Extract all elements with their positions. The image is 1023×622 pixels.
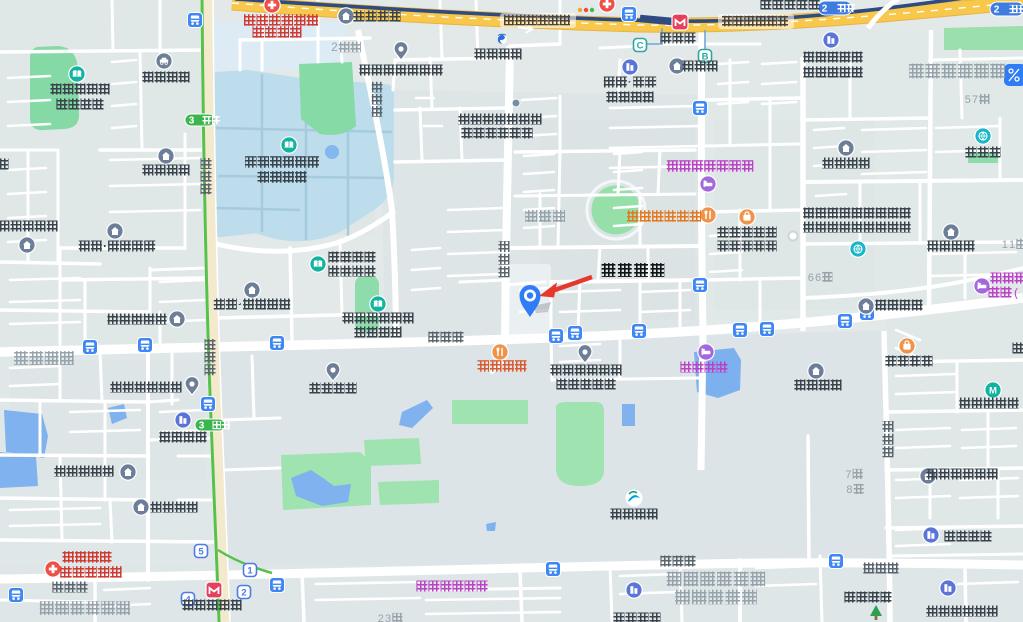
svg-text:1: 1 xyxy=(1009,239,1015,251)
svg-text:1: 1 xyxy=(247,566,253,577)
svg-text:5: 5 xyxy=(198,547,204,558)
svg-text:2: 2 xyxy=(822,4,828,15)
svg-text:3: 3 xyxy=(189,116,195,127)
svg-text:2: 2 xyxy=(241,588,246,599)
svg-text:8: 8 xyxy=(846,484,852,496)
svg-text:(: ( xyxy=(1014,285,1018,299)
svg-text:7: 7 xyxy=(845,469,851,481)
svg-text:6: 6 xyxy=(815,272,821,284)
svg-text:2: 2 xyxy=(378,613,384,622)
svg-text:3: 3 xyxy=(199,421,205,432)
svg-text:3: 3 xyxy=(385,613,391,622)
svg-text:1: 1 xyxy=(1002,239,1008,251)
svg-text:5: 5 xyxy=(965,94,971,106)
svg-text:2: 2 xyxy=(331,42,337,54)
svg-text:C: C xyxy=(637,41,644,52)
svg-text:6: 6 xyxy=(808,272,814,284)
svg-text:M: M xyxy=(989,385,997,396)
svg-text:7: 7 xyxy=(972,94,978,106)
svg-text:2: 2 xyxy=(994,5,1000,16)
